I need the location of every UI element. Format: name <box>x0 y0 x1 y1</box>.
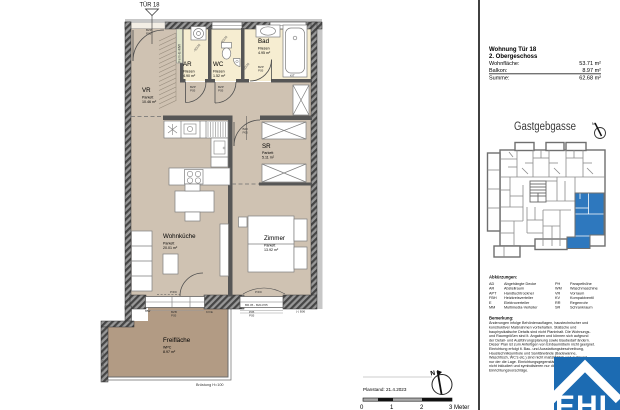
svg-text:WC: WC <box>213 61 224 68</box>
svg-text:53.71 m²: 53.71 m² <box>579 61 601 67</box>
svg-text:1.52 m²: 1.52 m² <box>213 74 226 78</box>
svg-text:Multimedia-Verteiler: Multimedia-Verteiler <box>504 306 538 310</box>
svg-text:Summe:: Summe: <box>489 76 510 82</box>
svg-text:4.90 m²: 4.90 m² <box>183 74 196 78</box>
svg-text:Wohnküche: Wohnküche <box>163 233 196 240</box>
svg-text:8.97 m²: 8.97 m² <box>582 68 601 74</box>
svg-text:SR: SR <box>262 143 271 150</box>
svg-text:(-) B06: (-) B06 <box>296 310 306 314</box>
svg-text:Terrasse B-02: Terrasse B-02 <box>101 352 105 372</box>
svg-text:KV: KV <box>555 296 561 300</box>
svg-text:AR: AR <box>489 287 495 291</box>
svg-text:P05: P05 <box>249 314 255 318</box>
svg-text:E: E <box>489 301 492 305</box>
svg-text:APT: APT <box>489 291 497 295</box>
svg-text:KIT: KIT <box>290 74 295 78</box>
svg-text:20.01 m²: 20.01 m² <box>163 246 178 250</box>
svg-text:Vorraum: Vorraum <box>570 291 584 295</box>
svg-text:Parkett: Parkett <box>142 96 153 100</box>
svg-text:VR: VR <box>142 87 151 94</box>
svg-text:Schrankraum: Schrankraum <box>570 306 593 310</box>
svg-text:P05: P05 <box>218 89 224 93</box>
svg-text:P05: P05 <box>171 314 177 318</box>
svg-text:P05: P05 <box>190 89 196 93</box>
svg-text:Fliesen: Fliesen <box>258 47 270 51</box>
svg-text:Zimmer: Zimmer <box>264 235 285 242</box>
svg-text:WPC: WPC <box>163 346 172 350</box>
svg-text:AD: AD <box>489 282 495 286</box>
svg-text:Brüstung H=100: Brüstung H=100 <box>196 383 224 387</box>
svg-text:Kompaktventil: Kompaktventil <box>570 296 594 300</box>
svg-text:MM: MM <box>489 306 495 310</box>
svg-text:5.11 m²: 5.11 m² <box>262 156 275 160</box>
svg-text:MW: MW <box>145 309 150 313</box>
svg-text:Parkett: Parkett <box>163 242 174 246</box>
svg-text:SR: SR <box>555 306 561 310</box>
svg-text:0: 0 <box>360 405 364 410</box>
svg-text:Handtuchtrockner: Handtuchtrockner <box>504 291 535 295</box>
svg-text:Wohnung Tür 18: Wohnung Tür 18 <box>489 47 537 53</box>
svg-text:Planstand: 21.4.2023: Planstand: 21.4.2023 <box>363 387 407 392</box>
svg-text:Einrichtungsvorschläge.: Einrichtungsvorschläge. <box>489 369 528 373</box>
svg-text:Freifläche: Freifläche <box>163 337 191 344</box>
svg-text:Bad: Bad <box>258 38 270 45</box>
svg-text:RR: RR <box>555 301 561 305</box>
svg-text:Parkett: Parkett <box>264 244 275 248</box>
svg-text:Waschmaschine: Waschmaschine <box>570 287 598 291</box>
svg-text:WM: WM <box>555 287 562 291</box>
svg-text:Elektroverteiler: Elektroverteiler <box>504 301 530 305</box>
svg-text:N: N <box>430 370 436 378</box>
svg-text:PH: PH <box>555 282 561 286</box>
svg-text:2. Obergeschoss: 2. Obergeschoss <box>489 54 538 60</box>
svg-text:AR: AR <box>183 61 192 68</box>
svg-text:4.95 m²: 4.95 m² <box>258 51 271 55</box>
svg-text:P05: P05 <box>146 32 152 36</box>
svg-text:Abstellraum: Abstellraum <box>504 287 524 291</box>
svg-text:Parapethöhe: Parapethöhe <box>570 282 592 286</box>
svg-text:10.46 m²: 10.46 m² <box>142 100 157 104</box>
svg-text:Fliesen: Fliesen <box>183 70 195 74</box>
svg-text:TÜR 18: TÜR 18 <box>140 1 160 9</box>
svg-text:Heizkreisverteiler: Heizkreisverteiler <box>504 296 534 300</box>
svg-text:EHL: EHL <box>555 390 618 410</box>
svg-text:13.92 m²: 13.92 m² <box>264 248 279 252</box>
svg-text:KV/E: KV/E <box>206 310 213 314</box>
svg-text:N: N <box>592 122 595 126</box>
svg-text:BR.05 - B20-P05: BR.05 - B20-P05 <box>245 303 268 307</box>
svg-text:Gastgebgasse: Gastgebgasse <box>514 121 576 133</box>
svg-text:Abgehängte Decke: Abgehängte Decke <box>504 282 536 286</box>
svg-text:P/FD: P/FD <box>255 290 263 294</box>
svg-text:Abkürzungen:: Abkürzungen: <box>489 275 517 280</box>
svg-text:Bemerkung:: Bemerkung: <box>489 316 513 321</box>
svg-text:Wohnfläche:: Wohnfläche: <box>489 61 520 67</box>
svg-text:Fliesen: Fliesen <box>213 70 225 74</box>
svg-text:Parkett: Parkett <box>262 151 273 155</box>
svg-text:62.68 m²: 62.68 m² <box>579 76 601 82</box>
svg-text:Fern-E-MW: Fern-E-MW <box>178 43 182 62</box>
svg-text:FBH: FBH <box>489 296 497 300</box>
svg-text:P05: P05 <box>258 69 264 73</box>
svg-text:2: 2 <box>420 405 424 410</box>
svg-text:VR: VR <box>555 291 561 295</box>
svg-text:1: 1 <box>390 405 394 410</box>
svg-text:8.97 m²: 8.97 m² <box>163 350 176 354</box>
svg-text:3 Meter: 3 Meter <box>449 405 469 410</box>
svg-text:Balkon:: Balkon: <box>489 68 508 74</box>
svg-text:Regenrohr: Regenrohr <box>570 301 589 305</box>
svg-text:P05: P05 <box>243 131 249 135</box>
svg-text:P/FD: P/FD <box>170 290 178 294</box>
